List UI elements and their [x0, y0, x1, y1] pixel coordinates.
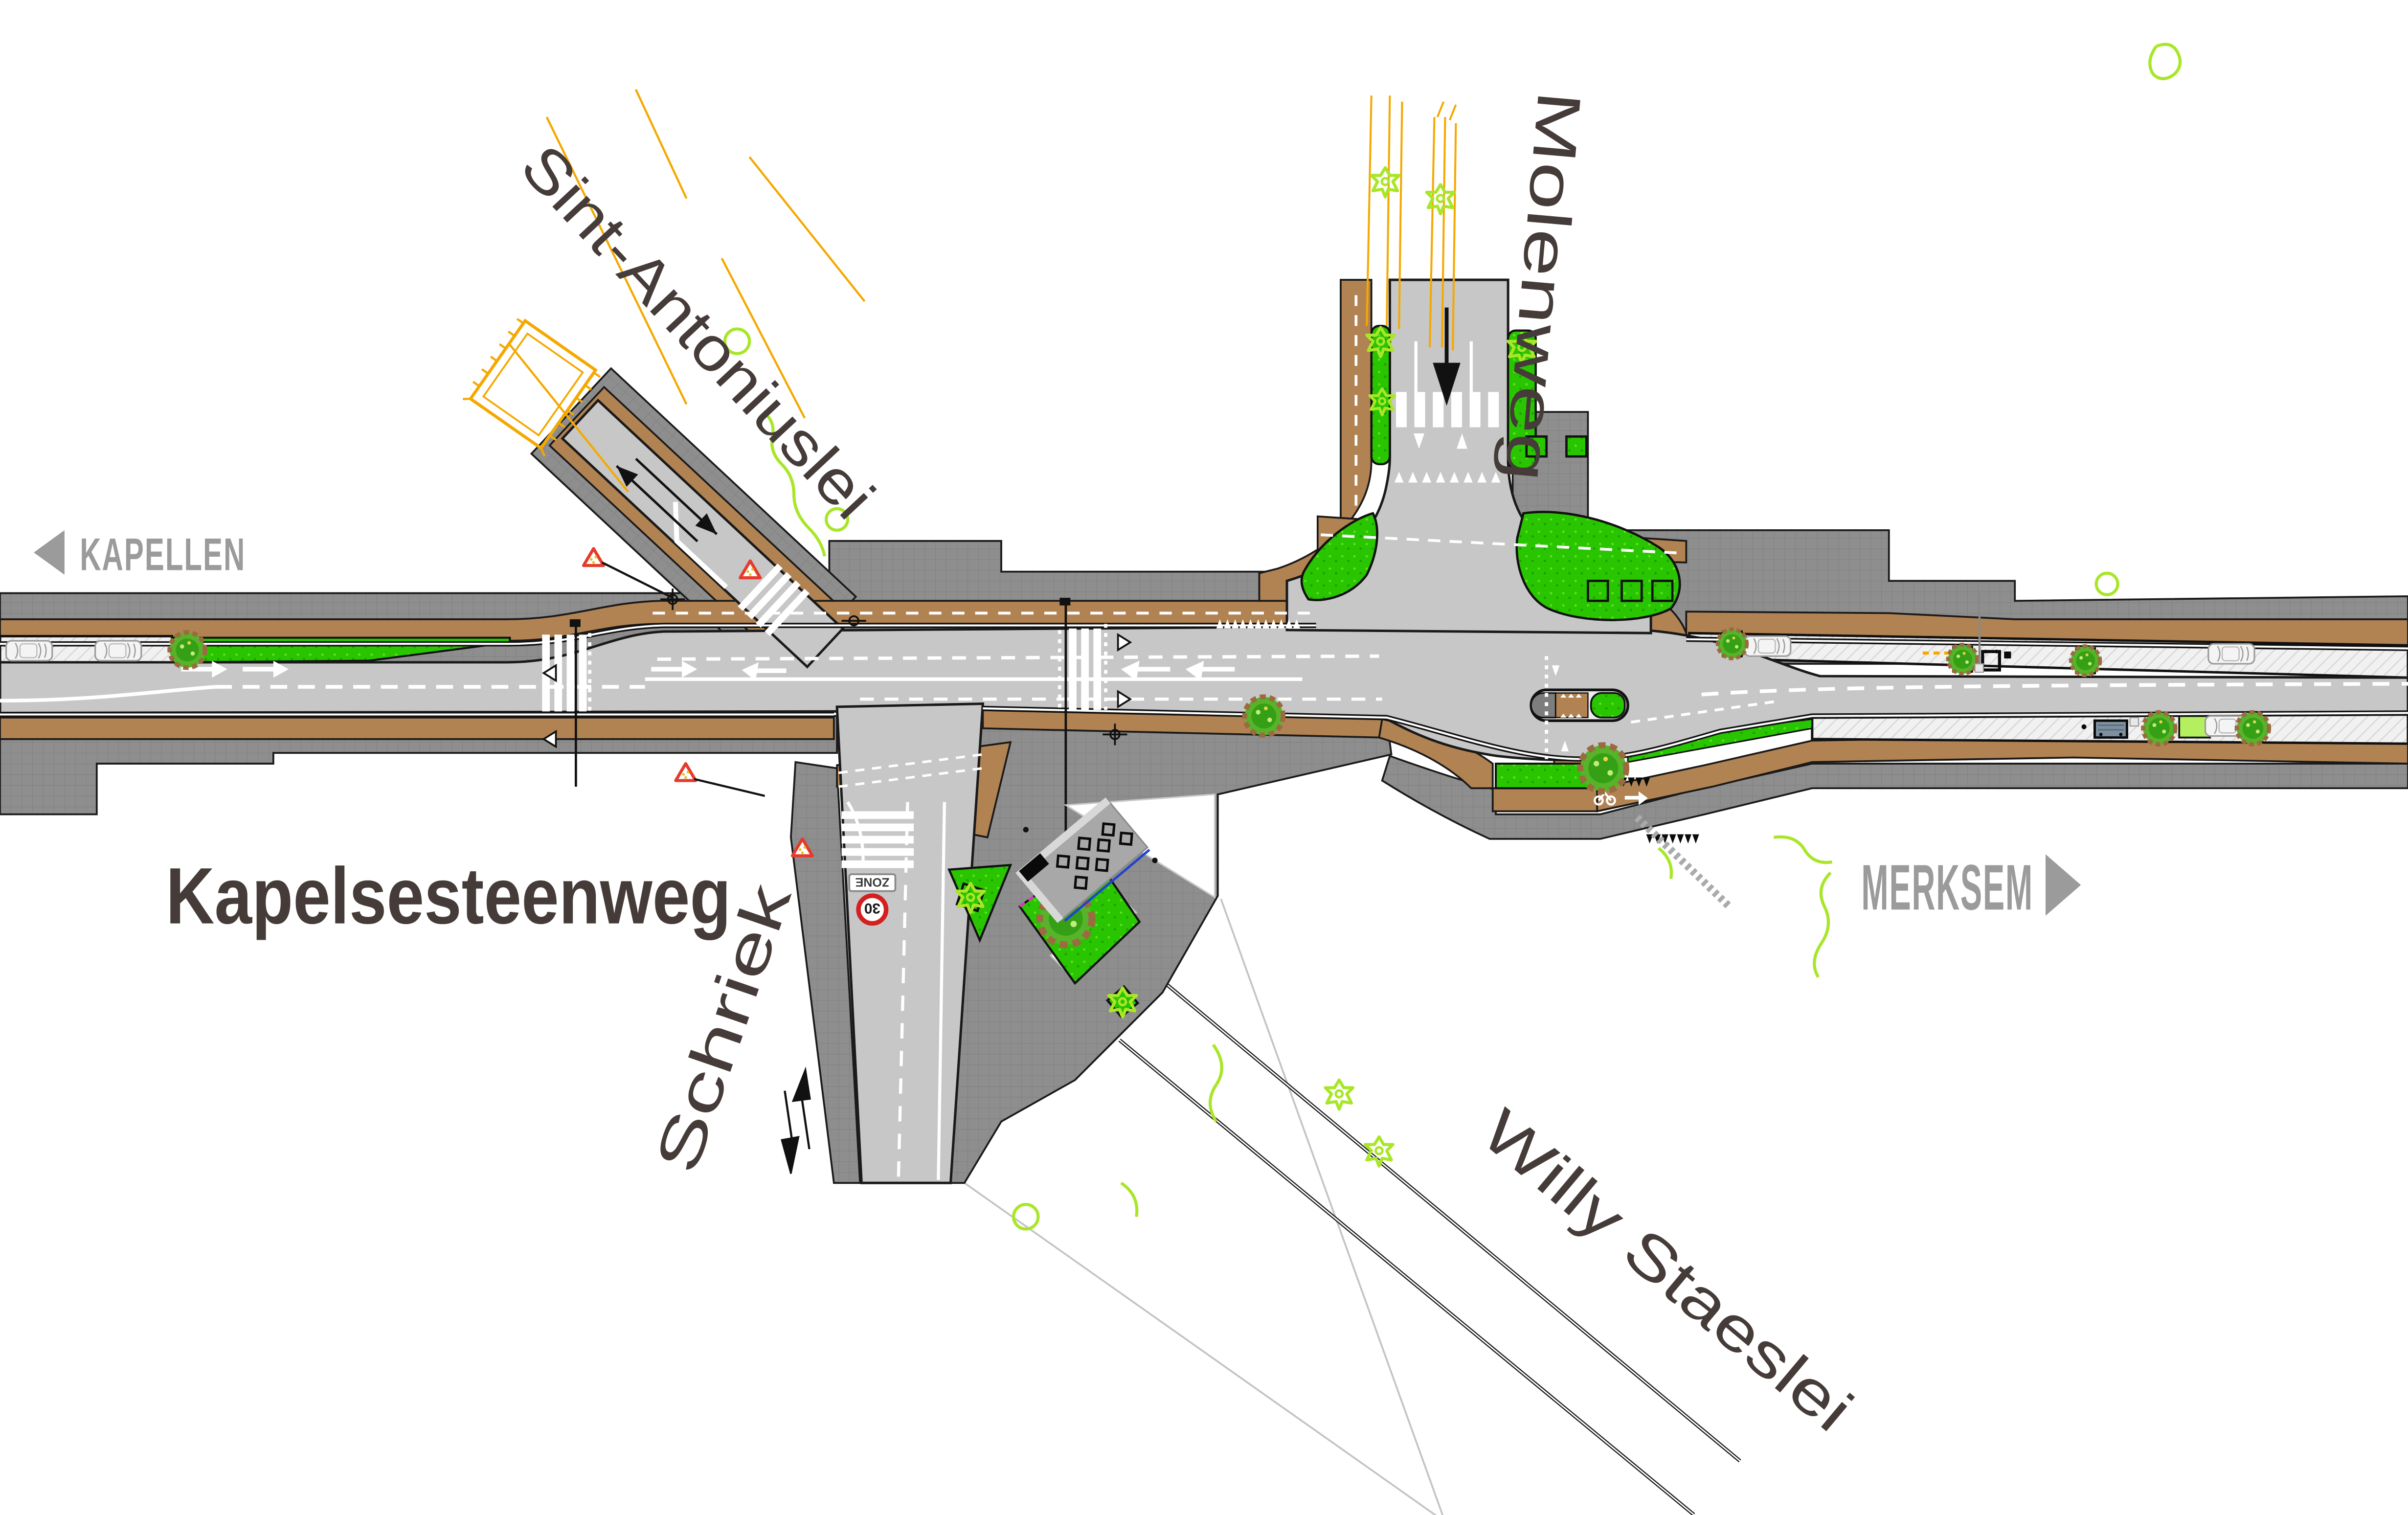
car-icon	[2208, 644, 2254, 664]
willy-staeslei-label: Willy Staeslei	[1469, 1096, 1866, 1445]
tree-icon	[1948, 645, 1978, 674]
direction-arrow-east-icon	[2046, 854, 2081, 916]
direction-east: MERKSEM	[1861, 851, 2081, 923]
direction-west: KAPELLEN	[34, 528, 246, 580]
bollard-icon	[1152, 858, 1157, 863]
direction-arrow-west-icon	[34, 530, 65, 575]
kapelsesteenweg-label: Kapelsesteenweg	[166, 851, 731, 941]
tree-icon	[1372, 168, 1399, 197]
bollard-icon	[1023, 827, 1029, 832]
speed-text: 30	[864, 900, 880, 916]
road-plan-canvas: ZONE 30	[0, 0, 2408, 1515]
zone-text: ZONE	[855, 875, 889, 889]
car-icon	[95, 641, 141, 661]
tree-icon	[1245, 697, 1283, 735]
kapellen-label: KAPELLEN	[80, 528, 246, 580]
tree-icon	[2071, 646, 2100, 676]
tree-icon	[2143, 712, 2175, 745]
warning-triangle-icon	[675, 764, 696, 781]
tree-icon	[170, 633, 205, 668]
car-icon	[1745, 636, 1791, 656]
traffic-light-mast-icon	[1059, 598, 1070, 606]
road-plan-drawing: ZONE 30	[0, 0, 2408, 1515]
warning-triangle-icon	[584, 549, 604, 566]
schriek-two-way-arrows	[782, 1069, 811, 1174]
utility-box-icon	[2004, 652, 2011, 658]
tree-icon	[1580, 745, 1626, 791]
tree-icon	[1427, 184, 1455, 214]
traffic-light-mast-icon	[570, 619, 581, 627]
zebra-crossing-east	[1069, 629, 1101, 710]
driveway-hatch	[1637, 817, 1729, 906]
green-island-east	[1517, 512, 1680, 620]
plaza-south	[943, 710, 1392, 1183]
tree-icon	[2237, 712, 2269, 745]
tree-icon	[1718, 629, 1747, 658]
car-icon	[6, 641, 52, 661]
merksem-label: MERKSEM	[1861, 851, 2033, 923]
